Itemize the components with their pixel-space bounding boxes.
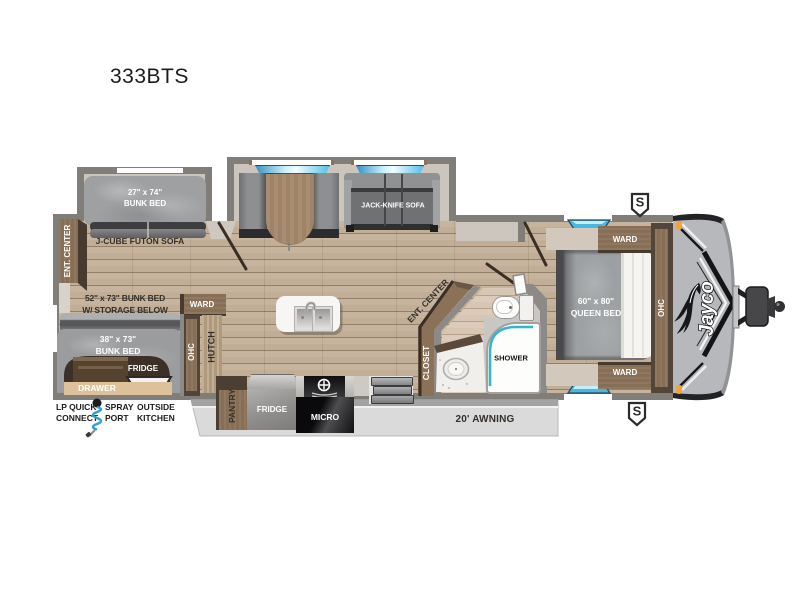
- svg-text:S: S: [633, 404, 642, 419]
- svg-text:S: S: [636, 195, 645, 210]
